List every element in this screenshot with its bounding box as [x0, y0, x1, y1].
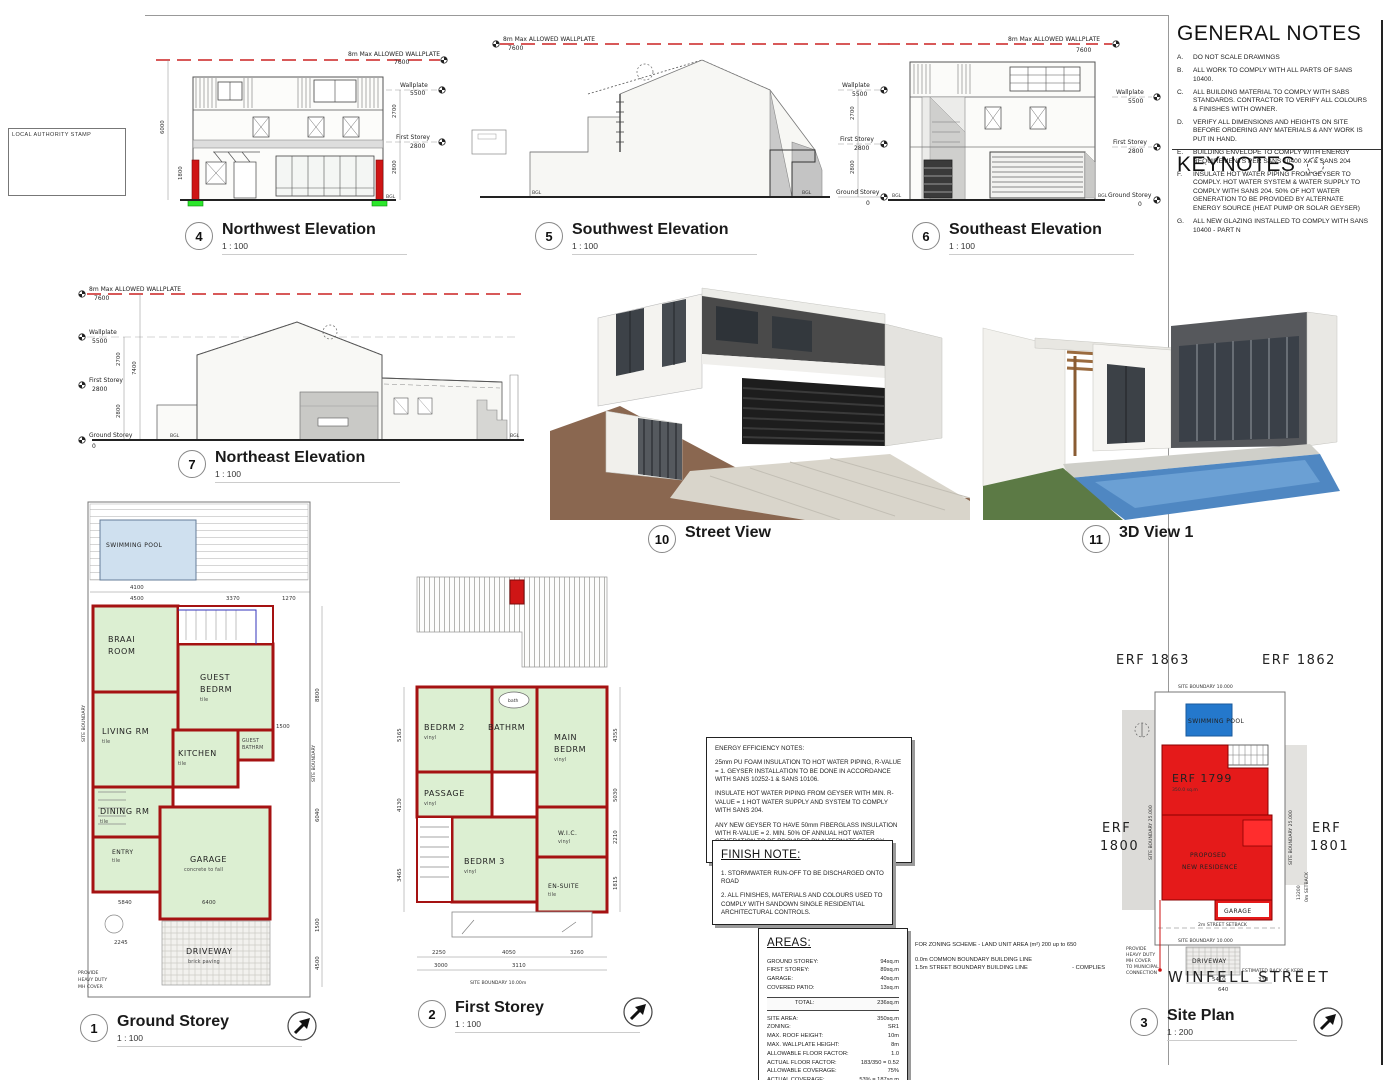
- svg-text:2250: 2250: [432, 950, 446, 956]
- svg-text:PASSAGE: PASSAGE: [424, 789, 465, 798]
- street-name: WINFELL STREET: [1168, 968, 1330, 986]
- svg-text:BEDRM 3: BEDRM 3: [464, 857, 505, 866]
- svg-text:SITE BOUNDARY 10.000: SITE BOUNDARY 10.000: [1178, 938, 1233, 944]
- svg-text:BATHRM: BATHRM: [488, 723, 525, 732]
- svg-text:BEDRM: BEDRM: [200, 685, 232, 694]
- areas-row: SITE AREA:350sq.m: [767, 1015, 899, 1024]
- svg-text:bath: bath: [508, 698, 519, 704]
- svg-text:PROVIDE: PROVIDE: [1126, 946, 1147, 952]
- svg-text:MAIN: MAIN: [554, 733, 577, 742]
- zoning-line: 0.0m COMMON BOUNDARY BUILDING LINE: [915, 957, 1105, 965]
- svg-text:vinyl: vinyl: [554, 757, 566, 763]
- areas-row: COVERED PATIO:13sq.m: [767, 984, 899, 993]
- svg-text:0: 0: [92, 443, 96, 450]
- svg-text:350.0 sq.m: 350.0 sq.m: [1172, 787, 1198, 793]
- svg-text:First Storey: First Storey: [396, 134, 430, 141]
- viewport-scale: 1 : 100: [222, 241, 407, 251]
- svg-text:BATHRM: BATHRM: [242, 745, 263, 751]
- svg-text:concrete to fall: concrete to fall: [184, 867, 223, 873]
- viewport-title: Northwest Elevation: [222, 222, 407, 239]
- svg-text:PROVIDE: PROVIDE: [78, 970, 99, 976]
- svg-text:CONNECTION: CONNECTION: [1126, 970, 1157, 976]
- energy-note-paragraph: INSULATE HOT WATER PIPING FROM GEYSER WI…: [715, 790, 903, 815]
- svg-text:1500: 1500: [315, 918, 321, 932]
- svg-text:tile: tile: [102, 739, 110, 745]
- north-arrow-first: [622, 996, 654, 1028]
- svg-text:ERF: ERF: [1102, 821, 1131, 836]
- svg-text:BEDRM 2: BEDRM 2: [424, 723, 465, 732]
- areas-row: MAX. ROOF HEIGHT:10m: [767, 1032, 899, 1041]
- viewport-scale: 1 : 100: [572, 241, 757, 251]
- svg-text:5500: 5500: [1128, 98, 1143, 105]
- svg-text:2800: 2800: [854, 145, 869, 152]
- general-notes-panel: GENERAL NOTES A.DO NOT SCALE DRAWINGS B.…: [1177, 22, 1377, 240]
- svg-text:ERF 1862: ERF 1862: [1262, 653, 1336, 668]
- svg-text:6040: 6040: [315, 808, 321, 822]
- areas-row: GARAGE:40sq.m: [767, 975, 899, 984]
- svg-text:BEDRM: BEDRM: [554, 745, 586, 754]
- svg-text:vinyl: vinyl: [424, 735, 436, 741]
- sheet-right-border: [1381, 20, 1383, 1065]
- southwest-elevation-drawing: 8m Max ALLOWED WALLPLATE 7600 BGL BGL Wa…: [470, 22, 890, 222]
- general-notes-title: GENERAL NOTES: [1177, 22, 1377, 46]
- finish-note-item: 1. STORMWATER RUN-OFF TO BE DISCHARGED O…: [721, 870, 884, 887]
- svg-text:MH COVER: MH COVER: [78, 984, 104, 990]
- svg-text:4500: 4500: [130, 596, 144, 602]
- viewport-label-3d-view: 11 3D View 1: [1082, 525, 1193, 553]
- svg-text:NEW RESIDENCE: NEW RESIDENCE: [1182, 864, 1238, 871]
- viewport-title: Southeast Elevation: [949, 222, 1134, 239]
- svg-text:1815: 1815: [613, 876, 619, 890]
- svg-text:2245: 2245: [114, 940, 128, 946]
- svg-text:tile: tile: [112, 858, 120, 864]
- svg-text:2210: 2210: [613, 830, 619, 844]
- svg-text:vinyl: vinyl: [464, 869, 476, 875]
- svg-text:First Storey: First Storey: [89, 377, 123, 384]
- viewport-number: 3: [1130, 1008, 1158, 1036]
- svg-text:SITE BOUNDARY 25.000: SITE BOUNDARY 25.000: [1148, 805, 1154, 860]
- general-note: C.ALL BUILDING MATERIAL TO COMPLY WITH S…: [1177, 89, 1373, 115]
- authority-stamp-label: LOCAL AUTHORITY STAMP: [12, 132, 91, 138]
- svg-text:ROOM: ROOM: [108, 647, 135, 656]
- svg-text:3260: 3260: [570, 950, 584, 956]
- areas-title: AREAS:: [767, 936, 899, 952]
- svg-text:7600: 7600: [1076, 47, 1091, 54]
- svg-text:DRIVEWAY: DRIVEWAY: [186, 947, 233, 956]
- northwest-elevation-drawing: 8m Max ALLOWED WALLPLATE 7600: [148, 22, 452, 222]
- svg-text:SWIMMING POOL: SWIMMING POOL: [1188, 718, 1245, 725]
- general-note: D.VERIFY ALL DIMENSIONS AND HEIGHTS ON S…: [1177, 119, 1373, 145]
- svg-text:EN-SUITE: EN-SUITE: [548, 883, 579, 890]
- viewport-scale: 1 : 100: [117, 1033, 302, 1043]
- svg-text:0m SETBACK: 0m SETBACK: [1304, 871, 1310, 902]
- svg-text:5500: 5500: [410, 90, 425, 97]
- svg-text:2800: 2800: [850, 160, 856, 174]
- southeast-elevation-drawing: 8m Max ALLOWED WALLPLATE 7600: [880, 22, 1168, 222]
- viewport-title: Ground Storey: [117, 1014, 302, 1031]
- svg-text:1801: 1801: [1310, 839, 1349, 854]
- svg-text:1800: 1800: [1100, 839, 1139, 854]
- svg-text:DRIVEWAY: DRIVEWAY: [1192, 958, 1227, 965]
- keynote-marker-icon: [1307, 157, 1324, 174]
- viewport-number: 2: [418, 1000, 446, 1028]
- svg-text:SITE BOUNDARY: SITE BOUNDARY: [311, 745, 317, 782]
- svg-text:SWIMMING POOL: SWIMMING POOL: [106, 542, 163, 549]
- svg-text:8m Max ALLOWED WALLPLATE: 8m Max ALLOWED WALLPLATE: [89, 286, 181, 293]
- viewport-number: 5: [535, 222, 563, 250]
- north-arrow-site: [1312, 1006, 1344, 1038]
- viewport-number: 10: [648, 525, 676, 553]
- svg-text:Wallplate: Wallplate: [842, 82, 870, 89]
- general-note: G.ALL NEW GLAZING INSTALLED TO COMPLY WI…: [1177, 218, 1373, 235]
- street-view-render: [550, 266, 970, 520]
- viewport-number: 6: [912, 222, 940, 250]
- svg-text:SITE BOUNDARY 10.000: SITE BOUNDARY 10.000: [1178, 684, 1233, 690]
- viewport-scale: 1 : 100: [455, 1019, 640, 1029]
- keynotes-header: KEYNOTES: [1177, 153, 1324, 177]
- svg-text:tile: tile: [200, 697, 208, 703]
- svg-text:SITE BOUNDARY 10.00m: SITE BOUNDARY 10.00m: [470, 980, 527, 986]
- svg-text:SITE BOUNDARY: SITE BOUNDARY: [81, 705, 87, 742]
- svg-text:3370: 3370: [226, 596, 240, 602]
- viewport-scale: 1 : 100: [949, 241, 1134, 251]
- svg-text:4500: 4500: [315, 956, 321, 970]
- svg-text:3110: 3110: [512, 963, 526, 969]
- svg-text:5840: 5840: [118, 900, 132, 906]
- svg-text:BGL: BGL: [170, 433, 180, 439]
- svg-text:First Storey: First Storey: [1113, 139, 1147, 146]
- svg-text:3000: 3000: [434, 963, 448, 969]
- svg-text:BGL: BGL: [802, 190, 812, 196]
- svg-text:7600: 7600: [94, 295, 109, 302]
- svg-text:0: 0: [1138, 201, 1142, 208]
- svg-text:HEAVY DUTY: HEAVY DUTY: [1126, 952, 1155, 958]
- viewport-number: 4: [185, 222, 213, 250]
- areas-row: GROUND STOREY:94sq.m: [767, 958, 899, 967]
- viewport-scale: 1 : 200: [1167, 1027, 1297, 1037]
- svg-text:7600: 7600: [394, 59, 409, 66]
- svg-text:W.I.C.: W.I.C.: [558, 830, 577, 837]
- viewport-title: First Storey: [455, 1000, 640, 1017]
- svg-text:1500: 1500: [276, 724, 290, 730]
- site-plan-drawing: ERF 1863 ERF 1862 SITE BOUNDARY 10.000 S…: [1100, 650, 1350, 995]
- svg-text:8m Max ALLOWED WALLPLATE: 8m Max ALLOWED WALLPLATE: [348, 51, 440, 58]
- svg-text:GUEST: GUEST: [200, 673, 230, 682]
- svg-text:8800: 8800: [315, 688, 321, 702]
- viewport-label-site-plan: 3 Site Plan 1 : 200: [1130, 1008, 1297, 1041]
- svg-text:Wallplate: Wallplate: [400, 82, 428, 89]
- svg-text:2800: 2800: [410, 143, 425, 150]
- svg-text:ERF: ERF: [1312, 821, 1341, 836]
- svg-text:GARAGE: GARAGE: [1224, 908, 1252, 915]
- viewport-title: Site Plan: [1167, 1008, 1297, 1025]
- svg-text:4130: 4130: [397, 798, 403, 812]
- svg-text:2800: 2800: [1128, 148, 1143, 155]
- keynotes-divider: [1172, 149, 1381, 150]
- viewport-number: 1: [80, 1014, 108, 1042]
- svg-text:6000: 6000: [160, 120, 166, 134]
- viewport-label-ground-storey: 1 Ground Storey 1 : 100: [80, 1014, 302, 1047]
- svg-text:4100: 4100: [130, 585, 144, 591]
- general-note: B.ALL WORK TO COMPLY WITH ALL PARTS OF S…: [1177, 67, 1373, 84]
- finish-note-title: FINISH NOTE:: [721, 848, 884, 864]
- svg-text:BGL: BGL: [386, 194, 396, 200]
- svg-text:5165: 5165: [397, 728, 403, 742]
- svg-text:Ground Storey: Ground Storey: [1108, 192, 1152, 199]
- svg-text:7600: 7600: [508, 45, 523, 52]
- areas-row: ALLOWABLE FLOOR FACTOR:1.0: [767, 1050, 899, 1059]
- svg-text:8m Max ALLOWED WALLPLATE: 8m Max ALLOWED WALLPLATE: [1008, 36, 1100, 43]
- keynotes-title: KEYNOTES: [1177, 153, 1295, 177]
- svg-text:DINING RM: DINING RM: [100, 807, 149, 816]
- svg-text:2m STREET SETBACK: 2m STREET SETBACK: [1198, 922, 1248, 928]
- viewport-title: 3D View 1: [1119, 525, 1193, 542]
- svg-text:ERF 1863: ERF 1863: [1116, 653, 1190, 668]
- drawing-sheet: LOCAL AUTHORITY STAMP GENERAL NOTES A.DO…: [0, 0, 1385, 1080]
- svg-text:TO MUNICIPAL: TO MUNICIPAL: [1125, 964, 1159, 970]
- svg-text:HEAVY DUTY: HEAVY DUTY: [78, 977, 107, 983]
- svg-text:5500: 5500: [92, 338, 107, 345]
- svg-text:6400: 6400: [202, 900, 216, 906]
- sheet-top-border: [145, 15, 1168, 16]
- svg-text:2800: 2800: [92, 386, 107, 393]
- viewport-label-southeast: 6 Southeast Elevation 1 : 100: [912, 222, 1134, 255]
- finish-note-item: 2. ALL FINISHES, MATERIALS AND COLOURS U…: [721, 892, 884, 917]
- zoning-note: FOR ZONING SCHEME - LAND UNIT AREA (m²) …: [915, 942, 1105, 973]
- svg-text:13200: 13200: [1296, 885, 1302, 900]
- north-arrow-ground: [286, 1010, 318, 1042]
- areas-box: AREAS: GROUND STOREY:94sq.m FIRST STOREY…: [758, 928, 908, 1080]
- viewport-title: Southwest Elevation: [572, 222, 757, 239]
- svg-text:5030: 5030: [613, 788, 619, 802]
- viewport-label-northwest: 4 Northwest Elevation 1 : 100: [185, 222, 407, 255]
- svg-text:tile: tile: [178, 761, 186, 767]
- areas-row: ACTUAL FLOOR FACTOR:183/350 = 0.52: [767, 1059, 899, 1068]
- viewport-scale: 1 : 100: [215, 469, 400, 479]
- svg-text:tile: tile: [100, 819, 108, 825]
- authority-stamp-box: LOCAL AUTHORITY STAMP: [8, 128, 126, 196]
- general-note: F.INSULATE HOT WATER PIPING FROM GEYSER …: [1177, 171, 1373, 214]
- svg-text:5500: 5500: [852, 91, 867, 98]
- svg-text:2800: 2800: [392, 160, 398, 174]
- viewport-number: 7: [178, 450, 206, 478]
- areas-row: ZONING:SR1: [767, 1023, 899, 1032]
- viewport-label-first-storey: 2 First Storey 1 : 100: [418, 1000, 640, 1033]
- viewport-title: Street View: [685, 525, 771, 542]
- viewport-number: 11: [1082, 525, 1110, 553]
- svg-text:7400: 7400: [132, 361, 138, 375]
- svg-text:tile: tile: [548, 892, 556, 898]
- svg-text:3465: 3465: [397, 868, 403, 882]
- svg-text:0: 0: [866, 200, 870, 207]
- svg-text:2700: 2700: [116, 352, 122, 366]
- svg-text:KITCHEN: KITCHEN: [178, 749, 217, 758]
- areas-row: MAX. WALLPLATE HEIGHT:8m: [767, 1041, 899, 1050]
- svg-text:Wallplate: Wallplate: [89, 329, 117, 336]
- svg-text:2700: 2700: [850, 106, 856, 120]
- energy-notes-title: ENERGY EFFICIENCY NOTES:: [715, 745, 903, 753]
- areas-total-row: TOTAL:236sq.m: [767, 997, 899, 1011]
- svg-text:BRAAI: BRAAI: [108, 635, 135, 644]
- svg-text:1800: 1800: [178, 166, 184, 180]
- general-notes-list: A.DO NOT SCALE DRAWINGS B.ALL WORK TO CO…: [1177, 54, 1377, 235]
- svg-text:GARAGE: GARAGE: [190, 855, 227, 864]
- svg-text:Wallplate: Wallplate: [1116, 89, 1144, 96]
- areas-row: ACTUAL COVERAGE:53% = 187sq.m: [767, 1076, 899, 1080]
- svg-text:8m Max ALLOWED WALLPLATE: 8m Max ALLOWED WALLPLATE: [503, 36, 595, 43]
- zoning-line: 1.5m STREET BOUNDARY BUILDING LINE: [915, 965, 1028, 973]
- viewport-label-southwest: 5 Southwest Elevation 1 : 100: [535, 222, 757, 255]
- energy-note-paragraph: 25mm PU FOAM INSULATION TO HOT WATER PIP…: [715, 759, 903, 784]
- svg-text:First Storey: First Storey: [840, 136, 874, 143]
- svg-text:BGL: BGL: [892, 193, 902, 199]
- svg-text:1270: 1270: [282, 596, 296, 602]
- northeast-elevation-drawing: 8m Max ALLOWED WALLPLATE 7600 Wallplate …: [62, 280, 532, 455]
- svg-text:640: 640: [1218, 987, 1229, 993]
- viewport-label-northeast: 7 Northeast Elevation 1 : 100: [178, 450, 400, 483]
- svg-text:PROPOSED: PROPOSED: [1190, 852, 1226, 859]
- svg-text:BGL: BGL: [532, 190, 542, 196]
- svg-text:4355: 4355: [613, 728, 619, 742]
- svg-text:MH COVER: MH COVER: [1126, 958, 1152, 964]
- svg-text:ERF 1799: ERF 1799: [1172, 772, 1232, 785]
- svg-text:2800: 2800: [116, 404, 122, 418]
- first-storey-plan: bath BEDRM 2 vinyl BATHRM MAIN BEDRM vin…: [362, 572, 662, 997]
- svg-text:GUEST: GUEST: [242, 738, 259, 744]
- svg-text:SITE BOUNDARY 25.000: SITE BOUNDARY 25.000: [1288, 810, 1294, 865]
- areas-row: ALLOWABLE COVERAGE:75%: [767, 1067, 899, 1076]
- svg-text:brick paving: brick paving: [188, 959, 220, 965]
- svg-text:ENTRY: ENTRY: [112, 849, 133, 856]
- svg-text:Ground Storey: Ground Storey: [89, 432, 133, 439]
- areas-row: FIRST STOREY:89sq.m: [767, 966, 899, 975]
- viewport-title: Northeast Elevation: [215, 450, 400, 467]
- svg-text:vinyl: vinyl: [558, 839, 570, 845]
- svg-text:2700: 2700: [392, 104, 398, 118]
- svg-text:BGL: BGL: [510, 433, 520, 439]
- svg-text:LIVING RM: LIVING RM: [102, 727, 149, 736]
- ground-storey-plan: SWIMMING POOL 4100 4500 3370 1270 BRAAI …: [78, 492, 330, 1012]
- finish-note-box: FINISH NOTE: 1. STORMWATER RUN-OFF TO BE…: [712, 840, 893, 925]
- zoning-line: FOR ZONING SCHEME - LAND UNIT AREA (m²) …: [915, 942, 1105, 950]
- 3d-view-render: [975, 286, 1340, 520]
- general-note: A.DO NOT SCALE DRAWINGS: [1177, 54, 1373, 63]
- svg-text:4050: 4050: [502, 950, 516, 956]
- svg-text:vinyl: vinyl: [424, 801, 436, 807]
- viewport-label-street-view: 10 Street View: [648, 525, 771, 553]
- svg-text:BGL: BGL: [1098, 193, 1108, 199]
